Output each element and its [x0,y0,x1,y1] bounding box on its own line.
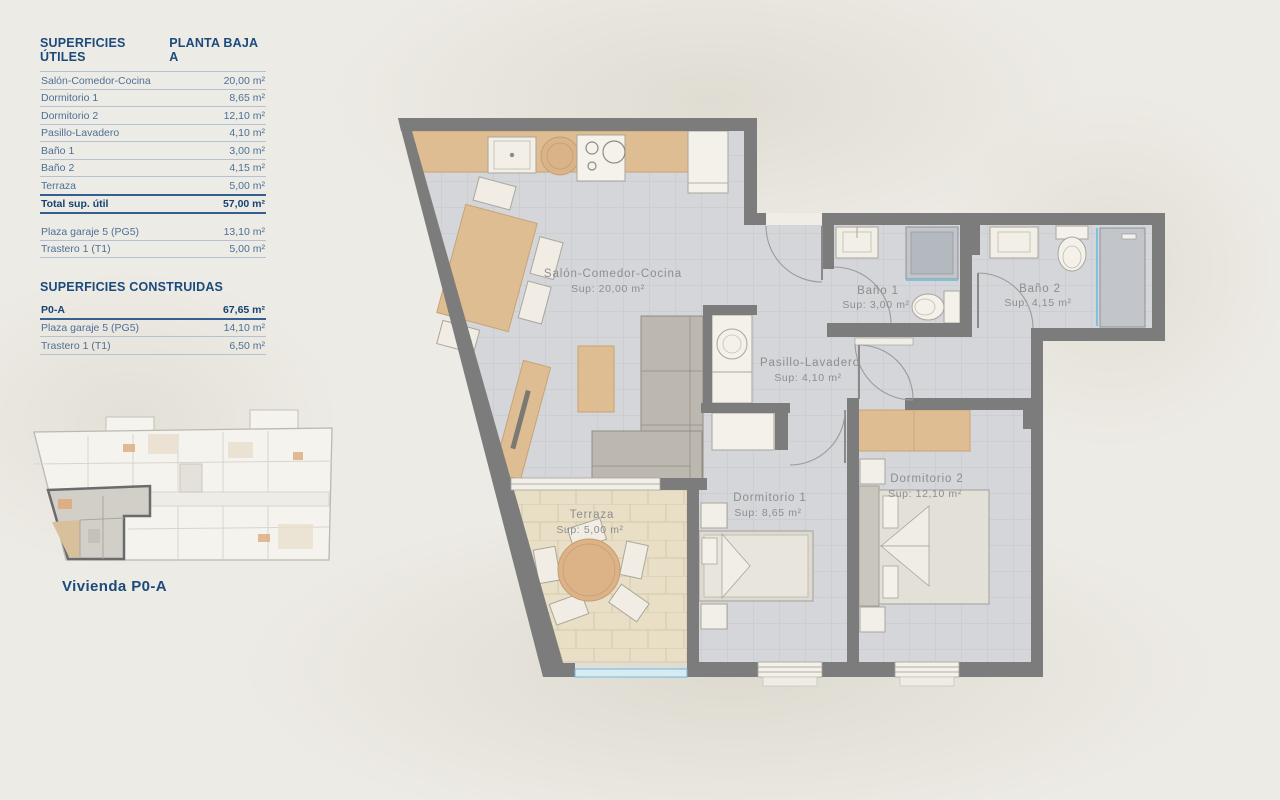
headboard [859,486,879,606]
panel-header: SUPERFICIES ÚTILES PLANTA BAJA A [40,36,266,64]
row-label: Dormitorio 2 [41,110,98,122]
row-label: Total sup. útil [41,198,108,210]
title-superficies-utiles: SUPERFICIES ÚTILES [40,36,169,64]
row-label: Trastero 1 (T1) [41,243,111,255]
unit-accent [88,529,100,543]
pillar [1023,407,1043,429]
room-label-dorm2: Dormitorio 2 [890,473,963,485]
utiles-table: Salón-Comedor-Cocina 20,00 m² Dormitorio… [40,71,266,214]
row-value: 4,10 m² [229,127,265,139]
table-row: Pasillo-Lavadero 4,10 m² [40,125,266,143]
window-sill [900,677,954,686]
terrace-glass-balustrade [575,669,687,677]
pillow [883,566,898,598]
areas-panel: SUPERFICIES ÚTILES PLANTA BAJA A Salón-C… [40,36,266,355]
table-row: Plaza garaje 5 (PG5) 13,10 m² [40,223,266,241]
title-planta: PLANTA BAJA A [169,36,266,64]
nightstand [860,459,885,484]
row-label: Plaza garaje 5 (PG5) [41,226,139,238]
table-row: P0-A 67,65 m² [40,301,266,320]
building-locator-plan [28,404,350,576]
toilet [912,294,944,320]
row-label: Pasillo-Lavadero [41,127,119,139]
row-label: Terraza [41,180,76,192]
room-sup-dorm2: Sup: 12,10 m² [888,488,962,500]
nightstand [701,604,727,629]
room-label-terraza: Terraza [570,509,615,521]
extras-table: Plaza garaje 5 (PG5) 13,10 m² Trastero 1… [40,223,266,258]
row-value: 5,00 m² [229,243,265,255]
title-superficies-construidas: SUPERFICIES CONSTRUIDAS [40,280,266,294]
window-sill [763,677,817,686]
floor-plan-sheet: Salón-Comedor-Cocina Sup: 20,00 m² Baño … [0,0,1280,800]
room-sup-salon: Sup: 20,00 m² [571,283,645,295]
table-row: Dormitorio 2 12,10 m² [40,107,266,125]
room-label-bano2: Baño 2 [1019,283,1061,295]
pillow [702,538,717,564]
closet [712,413,774,450]
unit-accent [58,499,72,509]
table-row: Dormitorio 1 8,65 m² [40,90,266,108]
table-row: Baño 1 3,00 m² [40,142,266,160]
row-value: 13,10 m² [224,226,265,238]
bedroom-2 [858,410,989,632]
round-table [558,539,620,601]
room-sup-terraza: Sup: 5,00 m² [556,524,623,536]
fridge [688,131,728,193]
row-label: P0-A [41,304,65,316]
total-row: Total sup. útil 57,00 m² [40,194,266,215]
row-label: Trastero 1 (T1) [41,340,111,352]
table-row: Trastero 1 (T1) 5,00 m² [40,241,266,259]
room-sup-bano1: Sup: 3,00 m² [842,299,909,311]
room-label-salon: Salón-Comedor-Cocina [544,268,682,280]
row-label: Plaza garaje 5 (PG5) [41,322,139,334]
row-value: 5,00 m² [229,180,265,192]
room-sup-dorm1: Sup: 8,65 m² [734,507,801,519]
entrance-opening [766,213,822,225]
row-value: 8,65 m² [229,92,265,104]
faucet [510,153,514,157]
window [895,662,959,677]
row-label: Dormitorio 1 [41,92,98,104]
row-label: Baño 1 [41,145,74,157]
row-label: Salón-Comedor-Cocina [41,75,151,87]
coffee-table [578,346,614,412]
table-row: Trastero 1 (T1) 6,50 m² [40,337,266,355]
row-value: 14,10 m² [224,322,265,334]
mini-plan-svg [28,404,350,576]
table-row: Plaza garaje 5 (PG5) 14,10 m² [40,320,266,338]
row-value: 57,00 m² [223,198,265,210]
construidas-table: P0-A 67,65 m² Plaza garaje 5 (PG5) 14,10… [40,301,266,355]
table-row: Salón-Comedor-Cocina 20,00 m² [40,72,266,90]
room-label-dorm1: Dormitorio 1 [733,492,806,504]
row-label: Baño 2 [41,162,74,174]
shower [1100,228,1145,327]
hall-opening [855,338,913,345]
row-value: 20,00 m² [224,75,265,87]
table-row: Terraza 5,00 m² [40,177,266,195]
row-value: 67,65 m² [223,304,265,316]
pillow [883,496,898,528]
nightstand [701,503,727,528]
corridor [128,492,329,506]
mini-plan-caption: Vivienda P0-A [62,578,167,595]
room-sup-bano2: Sup: 4,15 m² [1004,297,1071,309]
stair-core [180,464,202,492]
toilet [1058,237,1086,271]
window [758,662,822,677]
row-value: 3,00 m² [229,145,265,157]
room-sup-pasillo: Sup: 4,10 m² [774,372,841,384]
room-label-pasillo: Pasillo-Lavadero [760,357,860,369]
row-value: 4,15 m² [229,162,265,174]
table-row: Baño 2 4,15 m² [40,160,266,178]
row-value: 6,50 m² [229,340,265,352]
nightstand [860,607,885,632]
row-value: 12,10 m² [224,110,265,122]
room-label-bano1: Baño 1 [857,285,899,297]
